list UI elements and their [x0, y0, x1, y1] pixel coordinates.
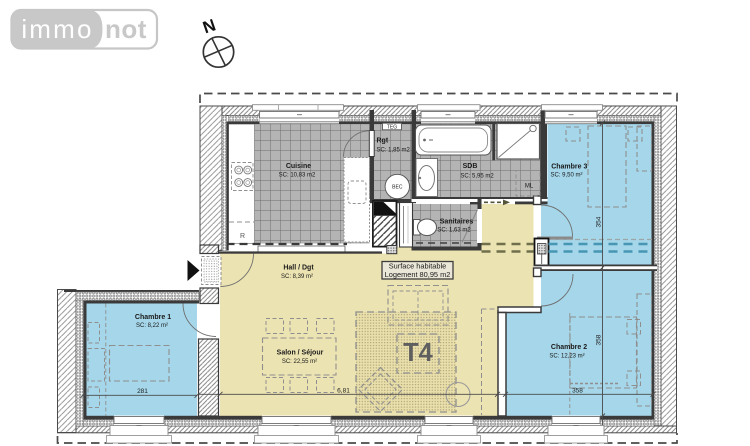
svg-text:Surface habitable: Surface habitable [389, 261, 447, 270]
svg-text:Cuisine: Cuisine [286, 163, 311, 170]
svg-text:Chambre 2: Chambre 2 [551, 344, 587, 351]
svg-text:BEC: BEC [392, 184, 403, 190]
svg-text:SC: 1,63 m2: SC: 1,63 m2 [437, 228, 471, 234]
svg-text:Logement 80,95 m2: Logement 80,95 m2 [385, 270, 451, 279]
svg-text:358: 358 [572, 388, 583, 395]
svg-text:T4: T4 [403, 339, 434, 367]
svg-text:Chambre 1: Chambre 1 [135, 314, 171, 321]
svg-text:SC: 8,22 m²: SC: 8,22 m² [136, 323, 168, 329]
svg-text:Chambre 3: Chambre 3 [551, 164, 587, 171]
svg-text:SC: 10,83 m2: SC: 10,83 m2 [279, 173, 316, 179]
svg-text:not: not [105, 14, 147, 44]
svg-text:SC: 9,50 m²: SC: 9,50 m² [550, 172, 582, 178]
svg-text:Hall / Dgt: Hall / Dgt [283, 265, 314, 272]
svg-text:6,81: 6,81 [337, 388, 350, 395]
svg-text:R: R [240, 233, 245, 240]
svg-text:SC: 22,55 m²: SC: 22,55 m² [282, 359, 317, 365]
svg-text:281: 281 [137, 388, 148, 395]
svg-text:immo: immo [21, 14, 93, 44]
svg-text:SC: 8,39 m²: SC: 8,39 m² [281, 274, 313, 280]
svg-text:Salon / Séjour: Salon / Séjour [277, 350, 324, 357]
svg-text:358: 358 [596, 334, 603, 345]
svg-text:354: 354 [596, 216, 603, 227]
svg-text:Rgt: Rgt [377, 138, 389, 145]
svg-text:Sanitaires: Sanitaires [440, 218, 474, 225]
svg-text:ML: ML [525, 183, 534, 189]
svg-text:SDB: SDB [463, 163, 478, 170]
svg-text:TEG: TEG [387, 124, 397, 130]
svg-text:SC: 12,23 m²: SC: 12,23 m² [549, 354, 584, 360]
svg-text:SC: 1,85 m2: SC: 1,85 m2 [377, 148, 411, 154]
svg-text:SC: 5,95 m2: SC: 5,95 m2 [460, 173, 494, 179]
